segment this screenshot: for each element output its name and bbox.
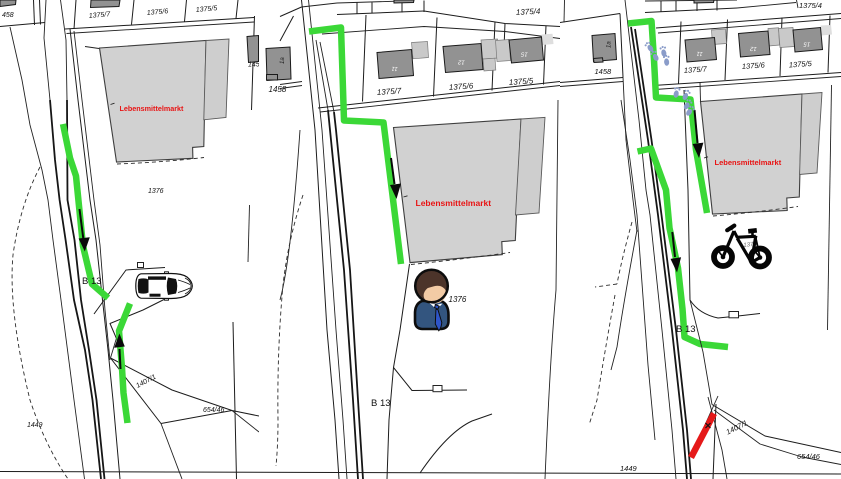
svg-text:1375/7: 1375/7 <box>684 64 708 75</box>
svg-text:B 13: B 13 <box>371 398 391 409</box>
svg-text:1375/5: 1375/5 <box>509 76 535 87</box>
svg-text:12: 12 <box>749 45 757 51</box>
svg-text:1375/7: 1375/7 <box>377 86 403 97</box>
svg-text:1376: 1376 <box>449 295 467 304</box>
svg-text:1a: 1a <box>607 41 613 48</box>
svg-text:654/46: 654/46 <box>797 452 821 461</box>
svg-text:1458: 1458 <box>595 67 613 76</box>
svg-text:11: 11 <box>391 65 398 71</box>
svg-text:1375/5: 1375/5 <box>789 59 813 70</box>
svg-text:1a: 1a <box>280 57 286 64</box>
svg-text:B 13: B 13 <box>82 276 102 287</box>
svg-text:15: 15 <box>520 50 528 56</box>
svg-text:458: 458 <box>2 12 14 19</box>
svg-text:B 13: B 13 <box>676 324 696 335</box>
svg-text:12: 12 <box>457 58 465 64</box>
svg-text:11: 11 <box>696 50 703 56</box>
svg-text:1375/6: 1375/6 <box>742 60 766 71</box>
svg-text:1449: 1449 <box>620 464 638 473</box>
svg-text:15: 15 <box>803 40 811 46</box>
svg-text:1376: 1376 <box>148 188 164 195</box>
svg-text:Lebensmittelmarkt: Lebensmittelmarkt <box>120 104 185 113</box>
svg-text:1375/4: 1375/4 <box>799 1 822 10</box>
svg-text:1458: 1458 <box>269 85 287 94</box>
svg-text:1375/4: 1375/4 <box>516 7 541 17</box>
svg-text:Lebensmittelmarkt: Lebensmittelmarkt <box>715 158 782 167</box>
svg-text:Lebensmittelmarkt: Lebensmittelmarkt <box>416 198 492 208</box>
svg-text:1375/6: 1375/6 <box>449 81 475 92</box>
svg-text:654/46: 654/46 <box>203 407 225 414</box>
